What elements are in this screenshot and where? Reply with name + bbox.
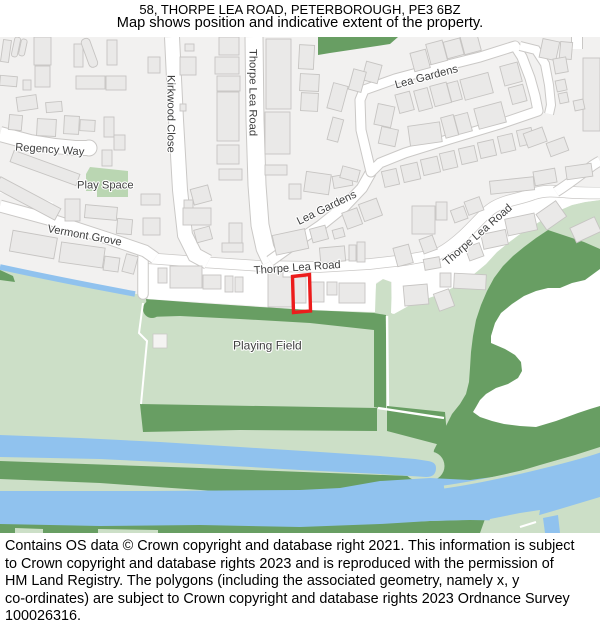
svg-text:Playing Field: Playing Field — [233, 339, 302, 353]
svg-text:Thorpe Lea Road: Thorpe Lea Road — [247, 49, 259, 136]
svg-text:Play Space: Play Space — [77, 180, 134, 192]
svg-text:Kirkwood Close: Kirkwood Close — [165, 75, 177, 153]
